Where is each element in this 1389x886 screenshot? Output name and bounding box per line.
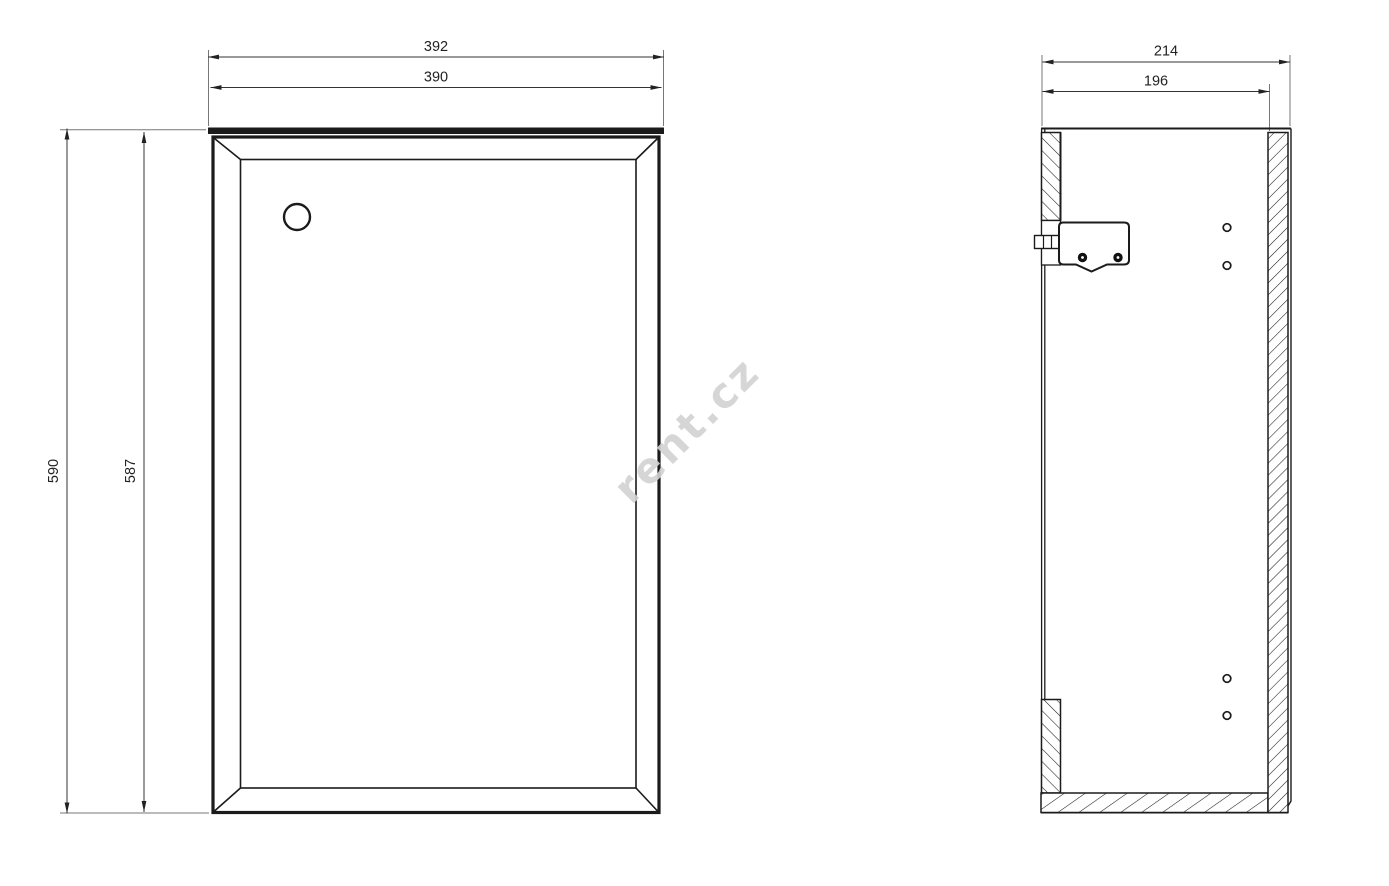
shelf-pin-hole (1223, 262, 1231, 270)
door-knob-hole (284, 204, 310, 230)
front-width-overall-label: 392 (424, 39, 448, 55)
shelf-pin-hole (1223, 224, 1231, 232)
shelf-pin-hole (1223, 712, 1231, 720)
cabinet-drawing: 392 390 590 587 (0, 0, 1389, 886)
side-dim-depth-overall: 214 (1043, 44, 1291, 65)
door-edge-section-top (1042, 133, 1061, 221)
side-wall-section (1268, 133, 1288, 813)
top-trim-strip (208, 128, 664, 135)
front-dim-width-overall: 392 (208, 39, 664, 59)
side-depth-overall-label: 214 (1154, 44, 1178, 60)
side-extension-lines (1042, 55, 1290, 131)
technical-drawing-canvas: 392 390 590 587 (0, 0, 1389, 886)
front-dim-width-door: 390 (211, 70, 662, 90)
front-height-door-label: 587 (123, 459, 139, 483)
front-height-overall-label: 590 (46, 459, 62, 483)
side-view: 214 196 (1035, 44, 1292, 813)
hinge-mount-tab (1035, 236, 1062, 249)
bottom-panel-section (1041, 793, 1268, 813)
shelf-pin-holes (1223, 224, 1231, 720)
front-dim-height-overall: 590 (46, 129, 69, 814)
side-dim-depth-inner: 196 (1043, 74, 1270, 94)
shelf-pin-hole (1223, 675, 1231, 683)
front-view: 392 390 590 587 (46, 39, 664, 814)
hinge-body (1059, 223, 1129, 272)
front-dim-height-door: 587 (123, 132, 146, 812)
side-depth-inner-label: 196 (1144, 74, 1168, 90)
door-outer-frame (213, 137, 659, 813)
door-edge-section-bottom (1042, 700, 1061, 794)
front-width-door-label: 390 (424, 70, 448, 86)
